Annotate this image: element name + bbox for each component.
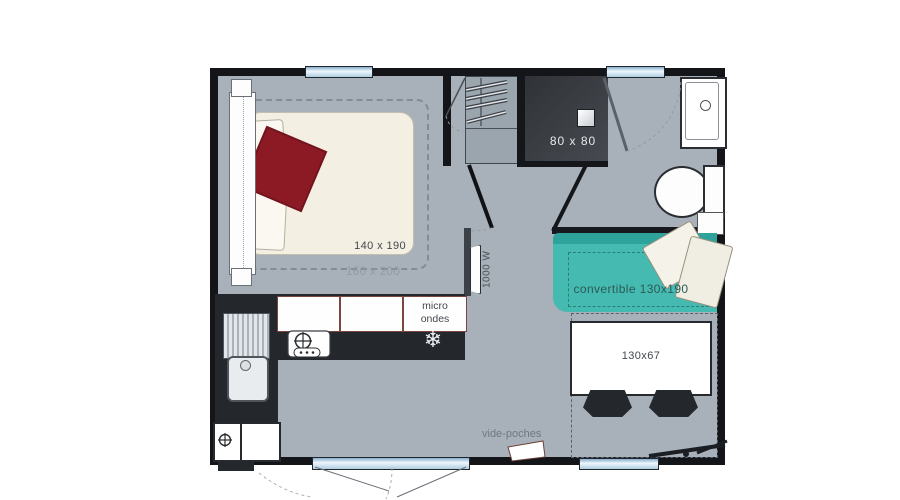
table-size-label: 130x67 xyxy=(572,350,710,362)
wardrobe-shelf xyxy=(466,128,518,129)
bedroom-wall xyxy=(443,76,451,166)
chair xyxy=(649,390,698,417)
washbasin-drain-icon xyxy=(700,100,711,111)
freezer-snowflake-icon: ❄ xyxy=(418,326,448,354)
shower-wall xyxy=(517,76,525,163)
bathroom-window xyxy=(606,66,665,78)
bedroom-window xyxy=(305,66,373,78)
headboard-shelf xyxy=(229,92,256,275)
washbasin-bowl xyxy=(685,82,719,140)
bedside-shelf xyxy=(231,79,252,97)
toilet-cabinet xyxy=(697,212,724,235)
bed-alt-size-label: 160 x 200 xyxy=(346,266,400,278)
living-window xyxy=(579,458,659,470)
shower-size-label: 80 x 80 xyxy=(540,134,606,148)
floor-plan: 140 x 190 160 x 200 80 x 80 convertible … xyxy=(0,0,900,500)
dining-table: 130x67 xyxy=(570,321,712,396)
shower-wall xyxy=(517,161,608,167)
entrance-door-swing xyxy=(315,467,466,499)
microwave-label: micro ondes xyxy=(404,300,466,326)
side-door-swing xyxy=(259,473,312,497)
wardrobe xyxy=(465,76,519,164)
kitchen-cabinet xyxy=(340,296,403,332)
gas-bottle-locker xyxy=(213,422,242,462)
chair xyxy=(583,390,632,417)
entrance-sliding-door xyxy=(312,457,470,470)
vide-poches-label: vide-poches xyxy=(482,428,541,440)
utility-locker xyxy=(240,422,281,462)
bedroom-partition-wall xyxy=(464,228,471,296)
kitchen-cabinet xyxy=(277,296,340,332)
sink-drainboard xyxy=(223,313,270,359)
toilet-bowl xyxy=(654,166,710,218)
shower-head-icon xyxy=(577,109,595,127)
sofa-label: convertible 130x190 xyxy=(558,282,704,296)
heater-power-label: 1000 W xyxy=(479,243,495,295)
bed-size-label: 140 x 190 xyxy=(330,240,406,252)
toilet-tank xyxy=(703,165,725,218)
exterior-step xyxy=(218,462,254,471)
sink-drain-icon xyxy=(240,360,251,371)
bedside-shelf xyxy=(231,268,252,286)
